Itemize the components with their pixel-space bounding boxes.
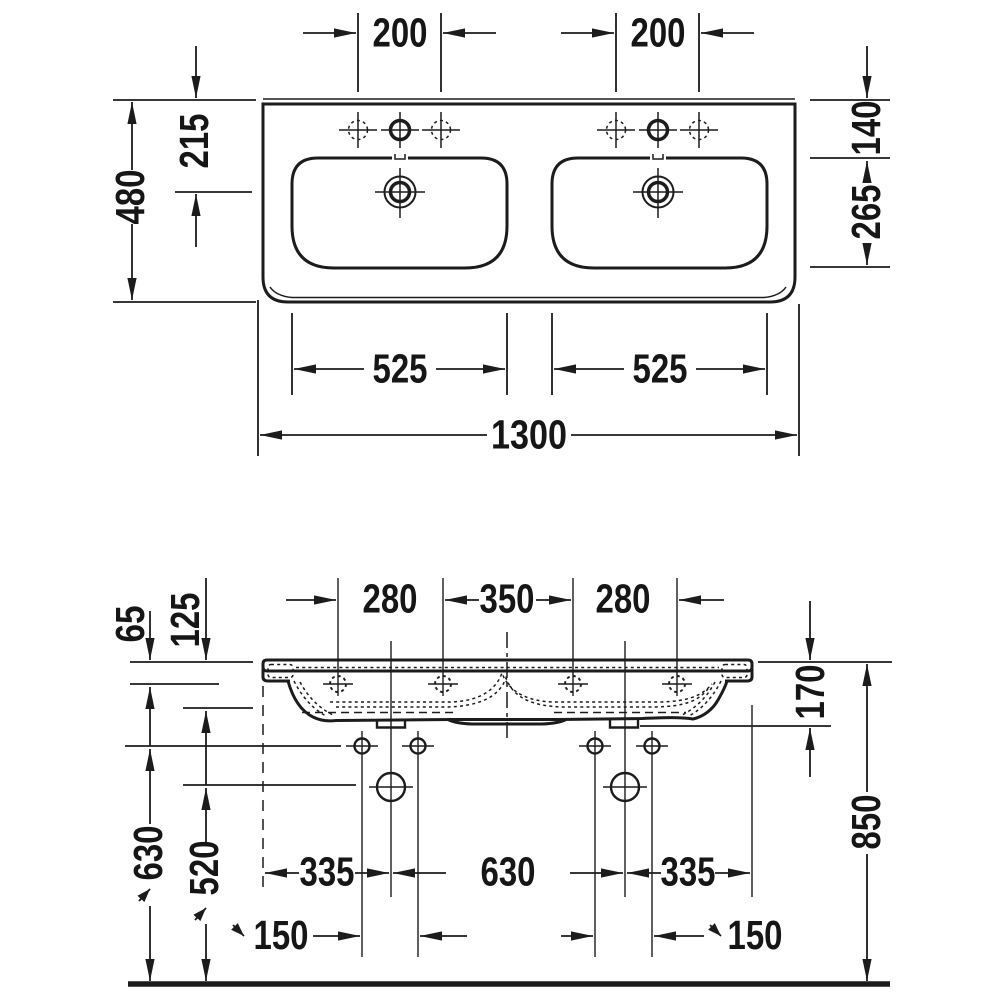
front-view: 280 350 280 65 125 630 520 — [107, 576, 892, 985]
dim-rim-to-taps: 65 — [107, 606, 153, 747]
dim-tap-spacing-right: 200 — [561, 10, 754, 93]
drain-right — [633, 168, 683, 218]
dim-tap-row: 280 350 280 — [286, 576, 724, 622]
dim-label-1300: 1300 — [491, 412, 567, 458]
dim-overall-width: 1300 — [258, 300, 799, 458]
dim-label-335-left: 335 — [300, 849, 355, 895]
bowl-right — [552, 151, 767, 268]
dim-label-630-spacing: 630 — [481, 849, 536, 895]
dim-label-350: 350 — [480, 576, 535, 622]
dim-bowl-depth: 265 — [810, 161, 890, 267]
dim-fixing-spacing-right: 150 — [561, 912, 783, 958]
dim-label-150-left: 150 — [254, 912, 309, 958]
dim-drain-height: 520 — [181, 788, 227, 981]
plan-view: 200 200 480 215 140 26 — [107, 10, 890, 458]
dim-label-630-height: 630 — [125, 826, 171, 881]
dim-label-215: 215 — [171, 114, 217, 169]
dim-label-525-left: 525 — [373, 346, 428, 392]
dim-label-480: 480 — [107, 170, 153, 225]
dim-label-150-right: 150 — [728, 912, 783, 958]
washbasin-technical-drawing: 200 200 480 215 140 26 — [0, 0, 1000, 1000]
dim-label-265: 265 — [843, 185, 889, 240]
dim-rear-to-drain: 215 — [171, 46, 252, 247]
tap-holes-right — [597, 112, 718, 148]
dim-label-525-right: 525 — [633, 346, 688, 392]
dim-label-65: 65 — [107, 606, 153, 643]
dim-apron-height: 125 — [162, 578, 208, 785]
dim-fixing-spacing-left: 150 — [233, 912, 467, 958]
dim-label-125: 125 — [162, 593, 208, 648]
dim-label-520: 520 — [181, 841, 227, 896]
dim-bowl-width-right: 525 — [552, 313, 767, 395]
extension-lines — [263, 641, 752, 957]
dim-installation-height: 850 — [843, 664, 889, 981]
dim-label-140: 140 — [843, 101, 889, 156]
dim-label-200-left: 200 — [373, 10, 428, 56]
drain-pipes — [369, 773, 647, 801]
dim-label-335-right: 335 — [661, 849, 716, 895]
drain-left — [375, 168, 425, 218]
dim-label-170: 170 — [787, 665, 833, 720]
dim-fixing-height: 630 — [125, 749, 171, 981]
dim-label-200-right: 200 — [631, 10, 686, 56]
dim-trap-row: 335 630 335 — [265, 849, 750, 895]
dim-label-280-right: 280 — [596, 576, 651, 622]
dim-label-280-left: 280 — [363, 576, 418, 622]
dim-ceramic-height: 170 — [787, 601, 833, 777]
dim-rear-to-bowl: 140 — [810, 46, 890, 158]
trap-connector-right — [610, 720, 638, 728]
dim-bowl-width-left: 525 — [292, 313, 507, 395]
dim-label-850: 850 — [843, 795, 889, 850]
dim-tap-spacing-left: 200 — [303, 10, 496, 93]
fixing-holes — [346, 739, 668, 754]
drawing-canvas: 200 200 480 215 140 26 — [0, 0, 1000, 1000]
tap-holes-left — [339, 112, 460, 148]
